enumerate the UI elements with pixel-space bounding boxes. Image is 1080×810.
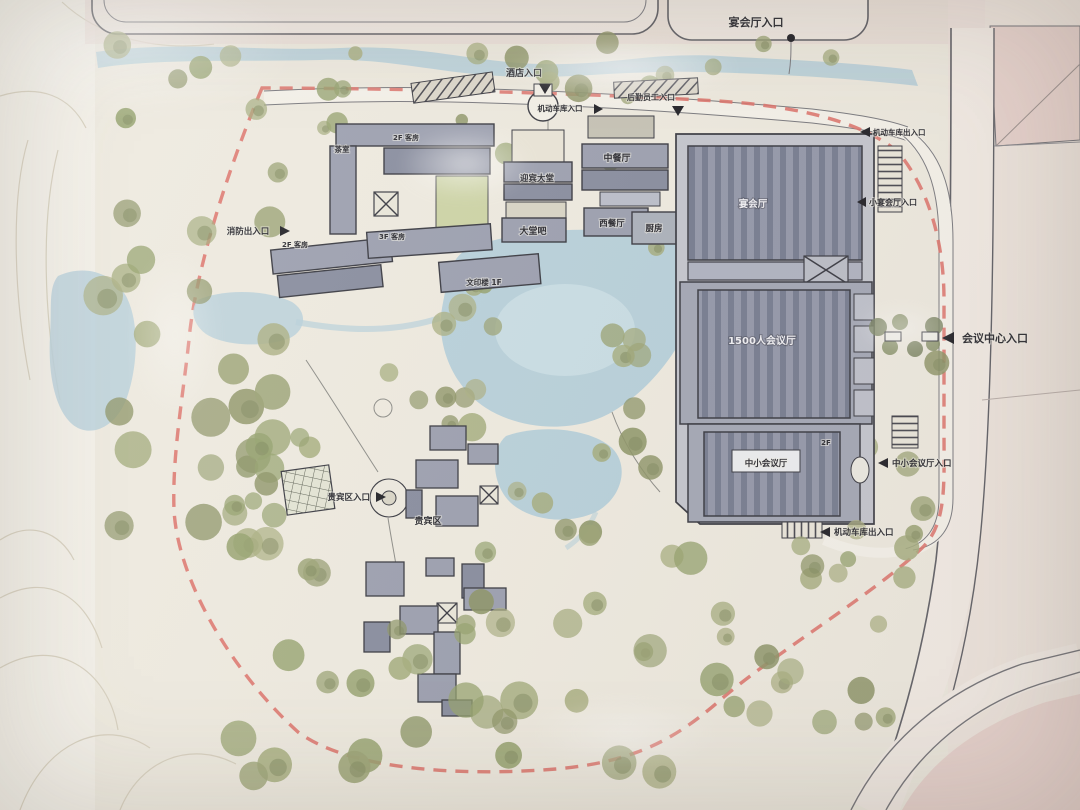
label-guestroom-2f-b: 2F 客房 — [282, 240, 308, 249]
label-tea-room: 茶室 — [334, 144, 350, 154]
label-chinese-restaurant: 中餐厅 — [603, 152, 630, 164]
label-small-medium-hall: 中小会议厅 — [745, 458, 788, 469]
label-small-medium-hall-entrance: 中小会议厅入口 — [892, 458, 952, 469]
label-welcome-lobby: 迎宾大堂 — [520, 173, 555, 184]
label-garage-entrance: 机动车库入口 — [538, 103, 583, 113]
label-floor-2f: 2F — [821, 439, 831, 447]
entrance-dot-marker — [787, 34, 795, 42]
label-kitchen: 厨房 — [645, 223, 662, 234]
label-conference-center-entrance: 会议中心入口 — [962, 331, 1028, 345]
label-banquet-hall: 宴会厅 — [739, 198, 768, 210]
label-western-restaurant: 西餐厅 — [599, 218, 625, 229]
label-fire-exit: 消防出入口 — [227, 226, 270, 237]
site-plan-drawing: 宴会厅入口 酒店入口 机动车库入口 后勤员工入口 机动车库出入口 小宴会厅入口 … — [0, 0, 1080, 810]
label-garage-exit-se: 机动车库出入口 — [834, 527, 894, 538]
site-plan-photo: 宴会厅入口 酒店入口 机动车库入口 后勤员工入口 机动车库出入口 小宴会厅入口 … — [0, 0, 1080, 810]
label-lobby-bar: 大堂吧 — [519, 225, 546, 237]
label-guestroom-2f-a: 2F 客房 — [393, 133, 419, 142]
label-hotel-entrance: 酒店入口 — [506, 67, 542, 79]
label-vip-area: 贵宾区 — [414, 515, 441, 527]
label-vip-entrance: 贵宾区入口 — [327, 492, 370, 503]
label-banquet-hall-entrance: 宴会厅入口 — [729, 15, 784, 29]
label-staff-entrance: 后勤员工入口 — [627, 92, 675, 102]
label-garage-exit-ne: 机动车库出入口 — [873, 127, 926, 137]
label-grand-hall: 1500人会议厅 — [728, 334, 796, 347]
label-small-banquet-entrance: 小宴会厅入口 — [868, 197, 917, 207]
label-guestroom-3f: 3F 客房 — [379, 232, 405, 241]
label-print-building: 文印楼 1F — [466, 277, 501, 287]
